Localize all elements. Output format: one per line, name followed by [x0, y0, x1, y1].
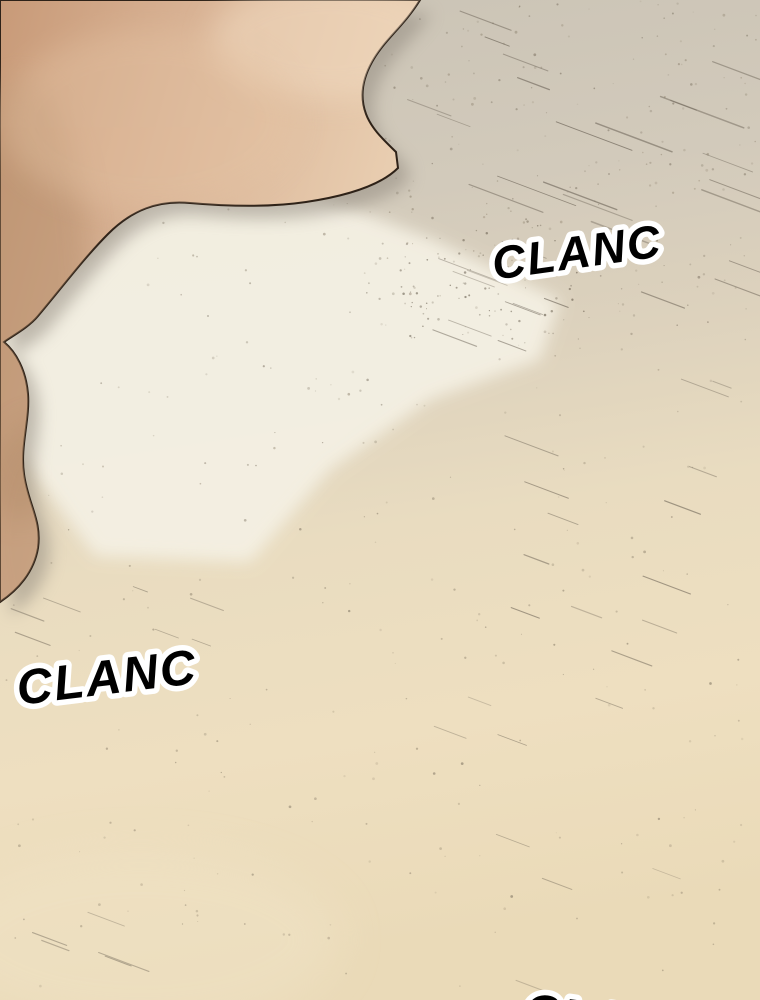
scene-illustration: CLANC CLANC CLANC — [0, 0, 760, 1000]
comic-panel: CLANC CLANC CLANC — [0, 0, 760, 1000]
